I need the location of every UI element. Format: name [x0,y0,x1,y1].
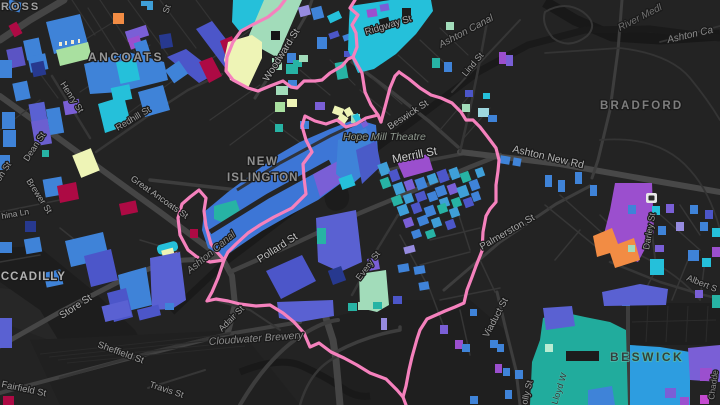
svg-text:BESWICK: BESWICK [610,350,684,364]
svg-text:NEW: NEW [247,156,278,168]
svg-text:ANCOATS: ANCOATS [88,50,164,64]
svg-text:BRADFORD: BRADFORD [600,100,683,112]
svg-text:ROSS: ROSS [1,1,40,13]
svg-text:PICCADILLY: PICCADILLY [0,271,66,283]
svg-text:ISLINGTON: ISLINGTON [227,172,298,184]
svg-text:Hope Mill Theatre: Hope Mill Theatre [343,131,426,143]
